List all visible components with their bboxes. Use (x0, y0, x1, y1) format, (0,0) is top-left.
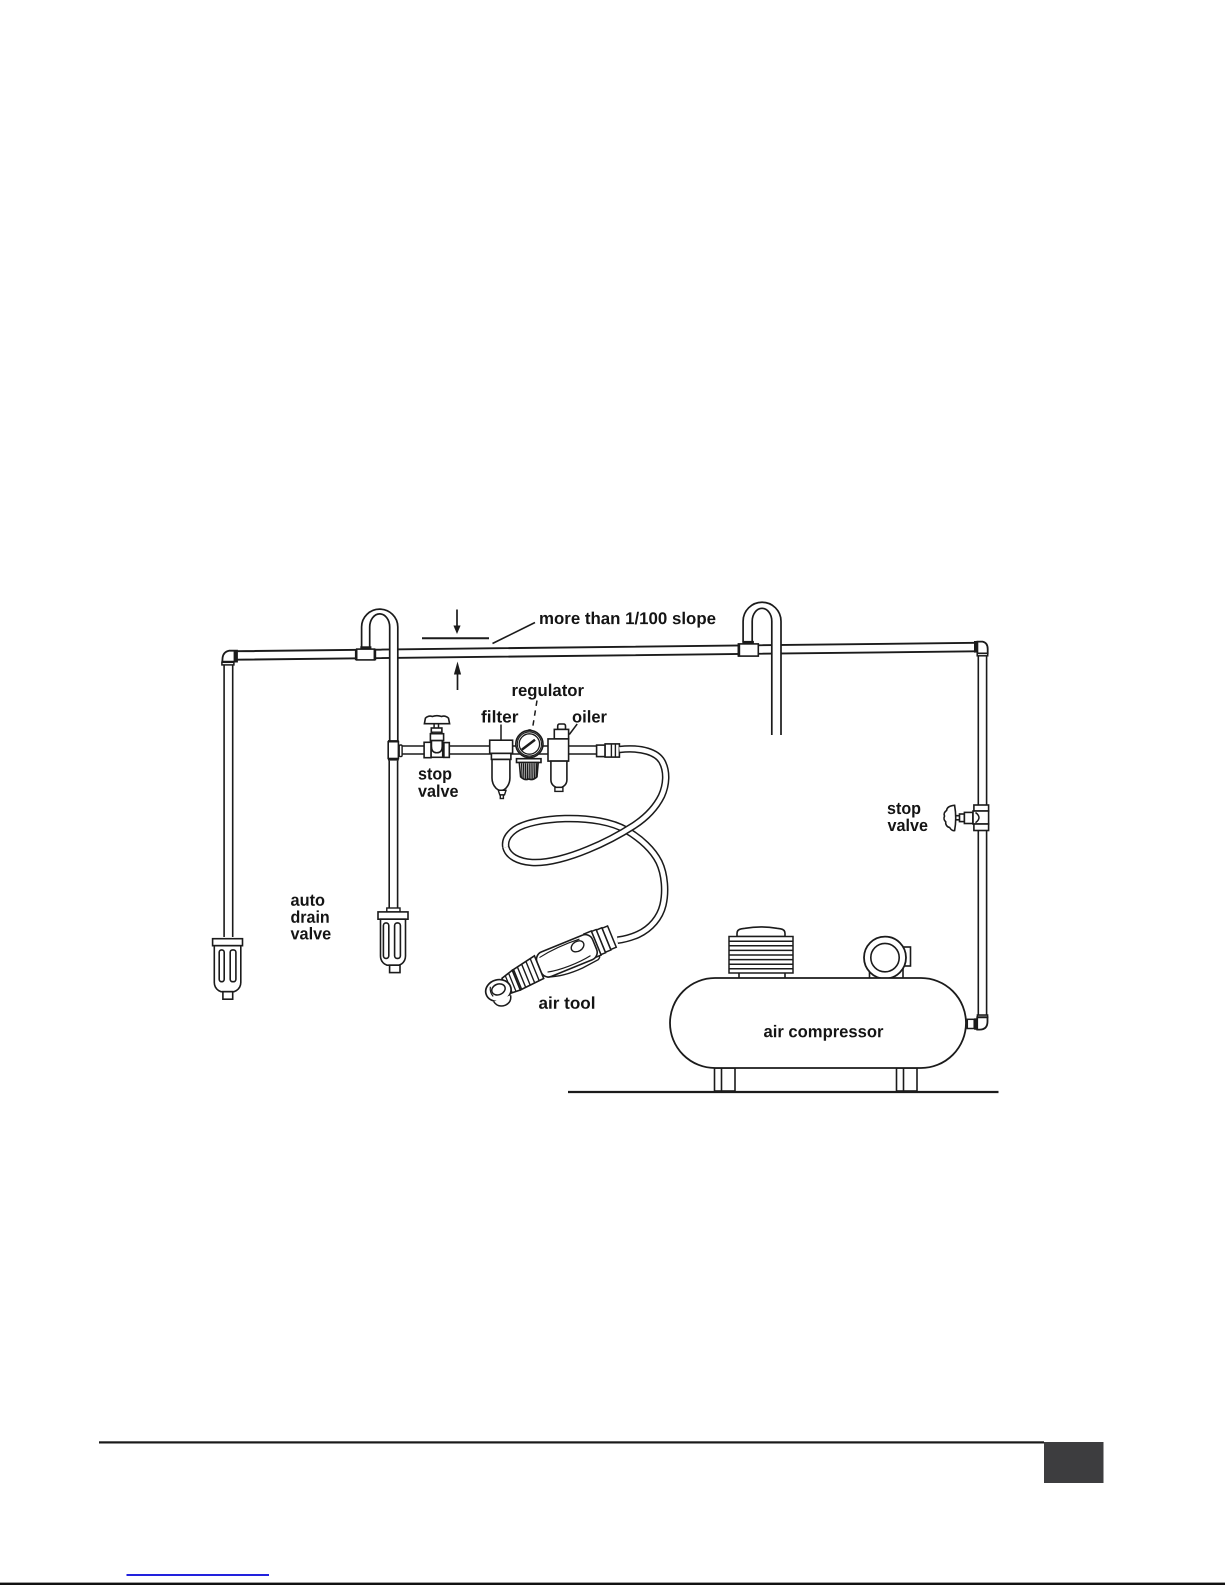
svg-text:filter: filter (481, 708, 519, 727)
svg-text:air tool: air tool (538, 994, 595, 1013)
svg-text:more than 1/100 slope: more than 1/100 slope (539, 609, 716, 628)
svg-text:oiler: oiler (572, 708, 607, 727)
svg-text:stop: stop (418, 765, 452, 784)
svg-text:valve: valve (418, 782, 459, 801)
svg-text:valve: valve (887, 816, 928, 835)
svg-text:regulator: regulator (511, 681, 584, 700)
svg-text:valve: valve (290, 924, 331, 943)
svg-text:air compressor: air compressor (763, 1022, 883, 1041)
